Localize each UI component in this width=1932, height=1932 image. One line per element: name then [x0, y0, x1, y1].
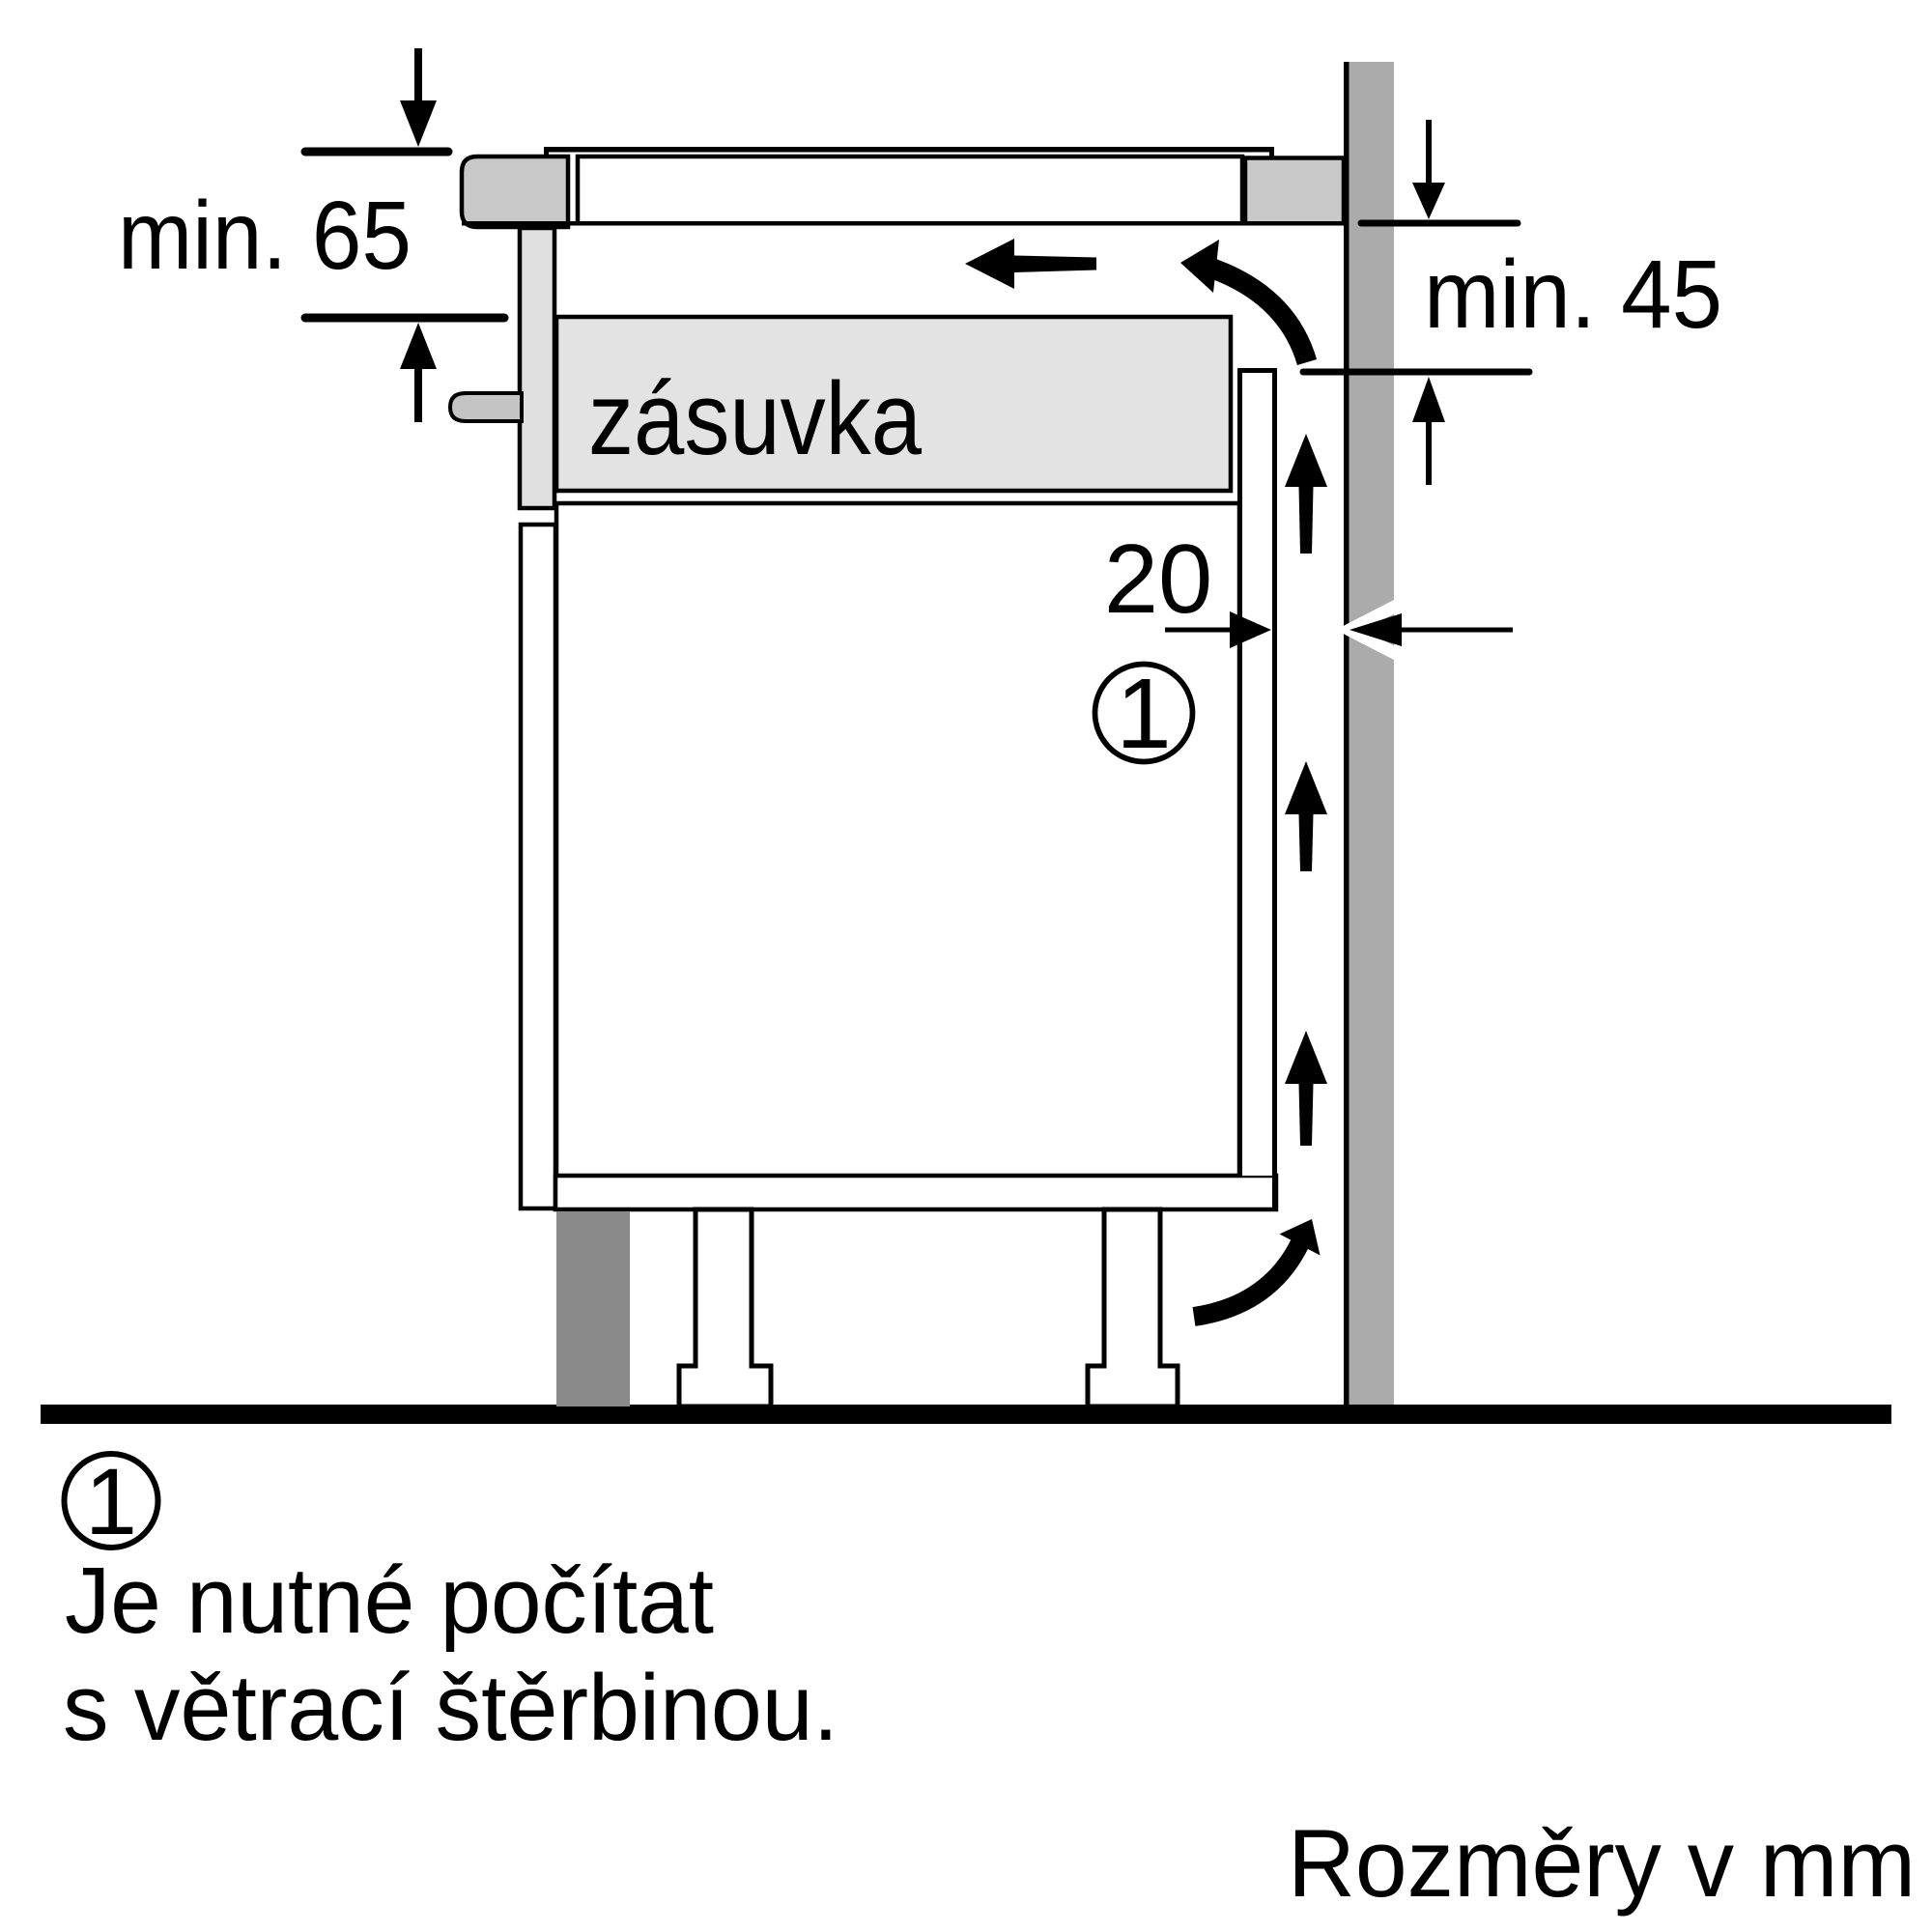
svg-text:20: 20: [1104, 526, 1212, 634]
svg-text:min. 65: min. 65: [118, 182, 412, 290]
svg-text:Je nutné počítat: Je nutné počítat: [65, 1548, 714, 1653]
svg-text:s větrací štěrbinou.: s větrací štěrbinou.: [63, 1655, 838, 1760]
svg-text:zásuvka: zásuvka: [588, 360, 922, 476]
svg-text:Rozměry v mm: Rozměry v mm: [1288, 1809, 1916, 1917]
svg-text:1: 1: [85, 1449, 137, 1554]
svg-text:1: 1: [1116, 658, 1171, 769]
svg-text:min. 45: min. 45: [1424, 241, 1722, 349]
